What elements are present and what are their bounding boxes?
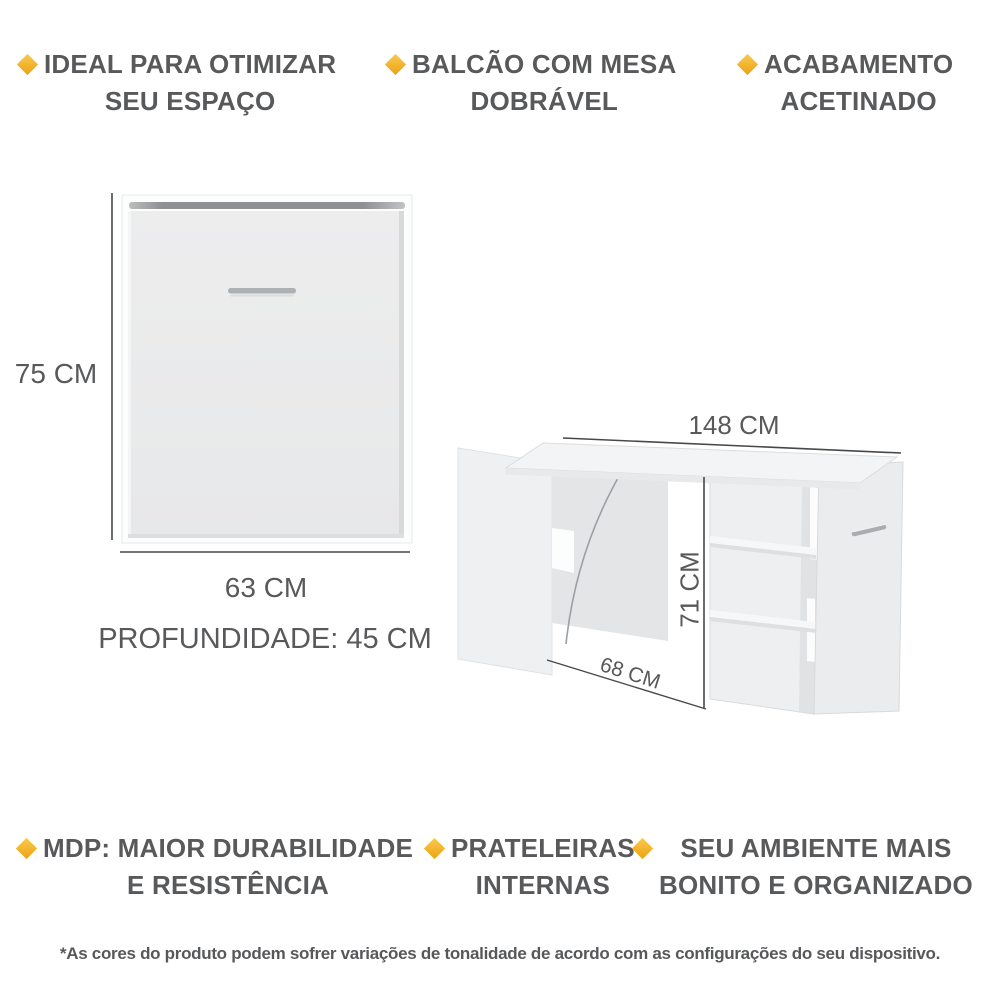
diamond-icon bbox=[423, 837, 445, 859]
feature-line: ACETINADO bbox=[780, 83, 936, 120]
color-disclaimer-text: *As cores do produto podem sofrer variaç… bbox=[0, 944, 1000, 964]
desk-height-label: 71 CM bbox=[675, 530, 706, 650]
feature-line: IDEAL PARA OTIMIZAR bbox=[44, 46, 336, 83]
feature-satin-finish: ACABAMENTO ACETINADO bbox=[736, 46, 953, 120]
desk-width-label: 148 CM bbox=[654, 410, 814, 441]
cabinet-handle bbox=[228, 288, 296, 294]
feature-line: BALCÃO COM MESA bbox=[412, 46, 676, 83]
diamond-icon bbox=[16, 53, 38, 75]
diamond-icon bbox=[736, 53, 758, 75]
feature-organized-environment: SEU AMBIENTE MAIS BONITO E ORGANIZADO bbox=[631, 830, 973, 904]
diamond-icon bbox=[631, 837, 653, 859]
feature-line: PRATELEIRAS bbox=[451, 830, 635, 867]
feature-optimize-space: IDEAL PARA OTIMIZAR SEU ESPAÇO bbox=[16, 46, 336, 120]
cabinet-depth-label: PROFUNDIDADE: 45 CM bbox=[65, 623, 465, 656]
desk-side-door bbox=[814, 462, 903, 714]
diamond-icon bbox=[15, 837, 37, 859]
feature-folding-table: BALCÃO COM MESA DOBRÁVEL bbox=[384, 46, 676, 120]
desk-shelf-unit bbox=[710, 473, 819, 714]
feature-mdp-durability: MDP: MAIOR DURABILIDADE E RESISTÊNCIA bbox=[15, 830, 413, 904]
feature-line: BONITO E ORGANIZADO bbox=[659, 867, 973, 904]
cabinet-height-label: 75 CM bbox=[6, 358, 106, 390]
cabinet-width-label: 63 CM bbox=[196, 572, 336, 604]
diamond-icon bbox=[384, 53, 406, 75]
cabinet-door bbox=[128, 211, 404, 538]
desk-left-support-panel bbox=[458, 448, 552, 675]
feature-line: ACABAMENTO bbox=[764, 46, 953, 83]
feature-line: SEU AMBIENTE MAIS bbox=[680, 830, 951, 867]
cabinet-body bbox=[122, 195, 412, 543]
cabinet-top-shadow-strip bbox=[129, 202, 405, 209]
feature-internal-shelves: PRATELEIRAS INTERNAS bbox=[423, 830, 635, 904]
feature-line: E RESISTÊNCIA bbox=[127, 867, 329, 904]
product-infographic: IDEAL PARA OTIMIZAR SEU ESPAÇO BALCÃO CO… bbox=[0, 0, 1000, 1000]
feature-line: SEU ESPAÇO bbox=[105, 83, 276, 120]
feature-line: INTERNAS bbox=[476, 867, 611, 904]
feature-line: MDP: MAIOR DURABILIDADE bbox=[43, 830, 413, 867]
feature-line: DOBRÁVEL bbox=[470, 83, 618, 120]
